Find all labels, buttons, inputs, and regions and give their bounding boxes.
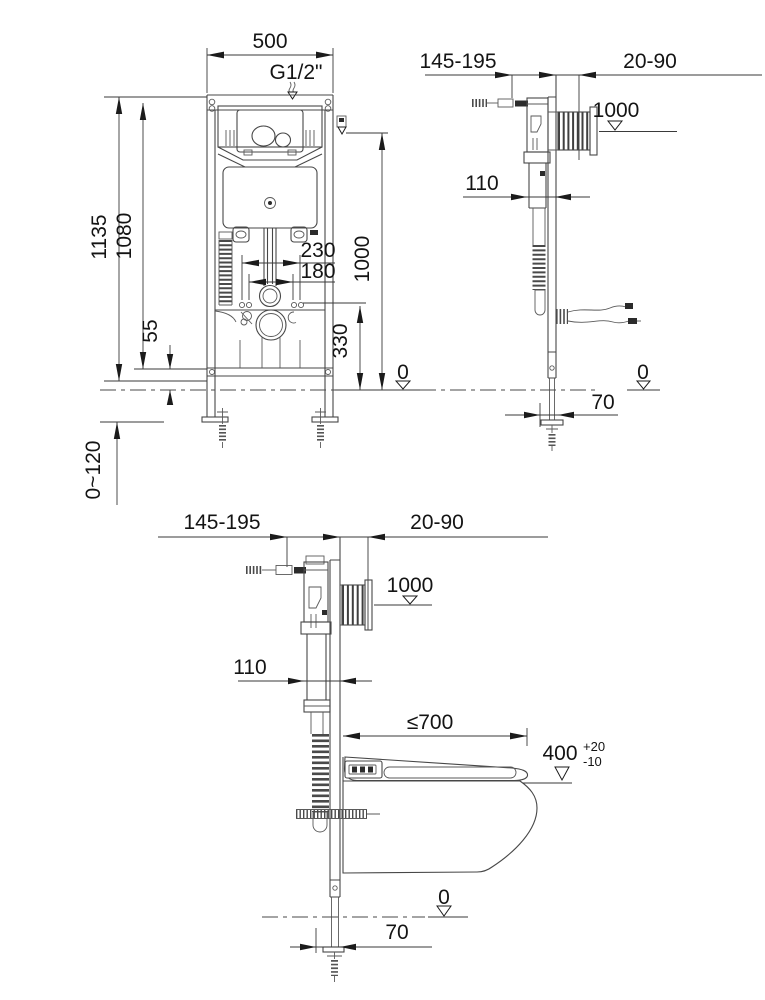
toilet-bowl [296,757,537,873]
bowl-body [343,781,537,873]
drain-outlet [256,310,286,340]
installed-view: 145-195 20-90 [158,511,605,982]
dim-cistern-depth-installed: 110 [233,656,266,679]
side-view: 145-195 20-90 [419,50,762,451]
dim-lower-rail-height: 55 [139,319,162,342]
dim-frame-depth-installed: 145-195 [183,511,260,534]
connection-hoses [556,303,641,324]
frame-leg-installed [323,537,344,982]
dim-total-height: 1135 [88,214,111,259]
dim-line-anchor-offset-installed [290,928,432,953]
dim-anchor-offset-installed: 70 [385,921,408,944]
dim-seat-height: 400 [542,742,577,765]
dim-wall-thickness-installed: 20-90 [410,511,464,534]
dim-outlet-height: 330 [329,323,352,358]
dim-frame-height: 1080 [113,213,136,260]
flush-plate [237,110,303,152]
dim-actuator-height-installed: 1000 [387,574,434,597]
water-supply-connection [472,99,528,107]
flush-pipe [264,228,276,286]
hose-hook [288,312,296,323]
actuator-sleeve [548,107,597,155]
floor-anchor-right [315,408,326,448]
foot-plate-right [312,417,338,422]
dim-bowl-length: ≤700 [407,711,454,734]
dim-seat-height-tol-upper: +20 [583,739,605,754]
cistern-profile-installed [301,556,331,832]
supply-hose [219,232,232,305]
dim-outer-stud-spacing: 230 [300,239,335,262]
water-supply-connection-installed [246,566,310,575]
cistern-profile [524,98,550,315]
floor-anchor-left [217,408,228,448]
dim-foot-adjustment: 0~120 [82,441,105,500]
dim-actuator-height: 1000 [351,236,374,283]
cistern-access-box [218,106,322,167]
dim-anchor-offset: 70 [591,391,614,414]
front-view: 500 G1/2" [82,30,420,505]
drawing-canvas: 500 G1/2" [0,0,765,1000]
dim-wall-thickness: 20-90 [623,50,677,73]
mounting-ear-left [233,227,249,242]
technical-drawing-page: 500 G1/2" [0,0,765,1000]
dim-water-supply: G1/2" [270,61,323,84]
flush-button-large [252,126,275,146]
dim-cistern-depth: 110 [465,172,498,195]
dim-seat-height-tol-lower: -10 [583,754,602,769]
actuator-sleeve-installed [340,580,372,630]
dim-frame-width: 500 [252,30,287,53]
sleeve-flange-installed [365,580,372,630]
actuator-level-mark [337,116,346,134]
dim-frame-depth: 145-195 [419,50,496,73]
flush-button-small [276,133,291,147]
dim-inner-stud-spacing: 180 [300,260,335,283]
dim-actuator-height-side: 1000 [593,99,640,122]
foot-plate-left [202,417,228,422]
